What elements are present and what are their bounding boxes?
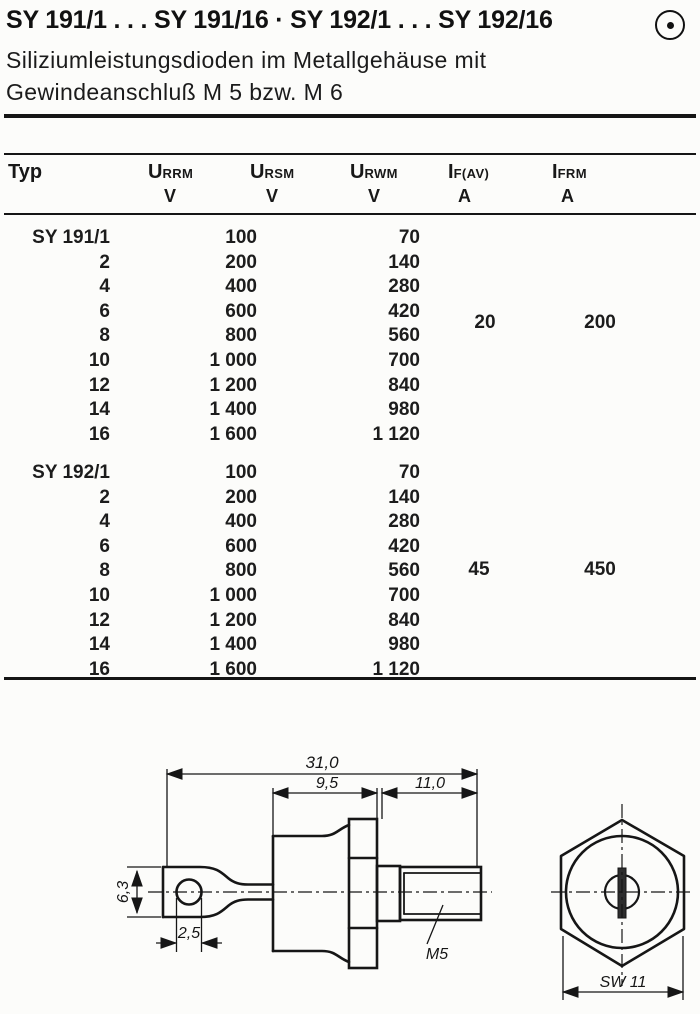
table-row: 14 1 400 980 — [0, 633, 420, 658]
table-row: 16 1 600 1 120 — [0, 658, 420, 683]
dim-hole-diameter: 2,5 — [177, 925, 200, 942]
urrm-ursm-cell: 1 600 — [110, 423, 257, 448]
table-row: 10 1 000 700 — [0, 584, 420, 609]
dim-body-length: 9,5 — [316, 775, 338, 792]
table-row: 14 1 400 980 — [0, 398, 420, 423]
hex-flange — [349, 819, 377, 968]
urrm-ursm-cell: 400 — [110, 510, 257, 535]
unit-label: V — [266, 185, 295, 207]
urrm-ursm-cell: 400 — [110, 275, 257, 300]
urwm-cell: 1 120 — [257, 658, 420, 683]
divider-table-top — [4, 153, 696, 155]
subtitle-line-2: Gewindeanschluß M 5 bzw. M 6 — [6, 76, 646, 108]
urwm-cell: 70 — [257, 226, 420, 251]
urwm-cell: 70 — [257, 461, 420, 486]
urwm-cell: 280 — [257, 275, 420, 300]
type-cell: 14 — [0, 398, 110, 423]
column-header-typ: Typ — [8, 161, 42, 183]
sy191-ifrm-value: 200 — [570, 312, 630, 334]
urrm-ursm-cell: 100 — [110, 461, 257, 486]
sy191-ifav-value: 20 — [455, 312, 515, 334]
urrm-ursm-cell: 800 — [110, 559, 257, 584]
urwm-cell: 700 — [257, 349, 420, 374]
column-header-ifav: IF(AV) A — [448, 161, 489, 207]
type-cell: 16 — [0, 423, 110, 448]
page-title: SY 191/1 . . . SY 191/16 · SY 192/1 . . … — [6, 6, 636, 35]
urrm-ursm-cell: 1 400 — [110, 398, 257, 423]
datasheet-page: SY 191/1 . . . SY 191/16 · SY 192/1 . . … — [0, 0, 700, 1014]
urrm-ursm-cell: 200 — [110, 486, 257, 511]
table-row: 16 1 600 1 120 — [0, 423, 420, 448]
urwm-cell: 560 — [257, 559, 420, 584]
urrm-ursm-cell: 1 200 — [110, 374, 257, 399]
type-cell: 6 — [0, 535, 110, 560]
type-cell: 14 — [0, 633, 110, 658]
sy192-ifav-value: 45 — [449, 559, 509, 581]
urwm-cell: 420 — [257, 535, 420, 560]
urwm-cell: 280 — [257, 510, 420, 535]
table-row: 4 400 280 — [0, 510, 420, 535]
urrm-ursm-cell: 600 — [110, 535, 257, 560]
table-row: 2 200 140 — [0, 486, 420, 511]
type-cell: 4 — [0, 510, 110, 535]
table-group-sy191: SY 191/1 100 70 2 200 140 4 400 280 6 60… — [0, 226, 420, 447]
table-row: 6 600 420 — [0, 535, 420, 560]
circled-dot-icon — [655, 10, 685, 40]
sy192-ifrm-value: 450 — [570, 559, 630, 581]
type-cell: 2 — [0, 251, 110, 276]
urwm-cell: 840 — [257, 609, 420, 634]
urrm-ursm-cell: 1 200 — [110, 609, 257, 634]
divider-thick — [4, 114, 696, 118]
urwm-cell: 840 — [257, 374, 420, 399]
urrm-ursm-cell: 100 — [110, 226, 257, 251]
urrm-ursm-cell: 1 400 — [110, 633, 257, 658]
type-cell: 2 — [0, 486, 110, 511]
type-cell: 6 — [0, 300, 110, 325]
type-cell: 4 — [0, 275, 110, 300]
subtitle-line-1: Siliziumleistungsdioden im Metallgehäuse… — [6, 44, 646, 76]
urwm-cell: 420 — [257, 300, 420, 325]
urrm-ursm-cell: 1 000 — [110, 584, 257, 609]
urrm-ursm-cell: 800 — [110, 324, 257, 349]
type-cell: 12 — [0, 374, 110, 399]
urrm-ursm-cell: 200 — [110, 251, 257, 276]
table-row: 12 1 200 840 — [0, 609, 420, 634]
type-cell: SY 192/1 — [0, 461, 110, 486]
unit-label: V — [368, 185, 398, 207]
type-cell: 8 — [0, 559, 110, 584]
column-header-urwm: URWM V — [350, 161, 398, 207]
table-row: 2 200 140 — [0, 251, 420, 276]
urrm-ursm-cell: 1 000 — [110, 349, 257, 374]
type-cell: 16 — [0, 658, 110, 683]
type-cell: 10 — [0, 349, 110, 374]
urwm-cell: 560 — [257, 324, 420, 349]
urrm-ursm-cell: 1 600 — [110, 658, 257, 683]
urwm-cell: 140 — [257, 251, 420, 276]
dim-lug-width: 6,3 — [115, 881, 132, 903]
table-row: 8 800 560 — [0, 559, 420, 584]
urwm-cell: 700 — [257, 584, 420, 609]
page-subtitle: Siliziumleistungsdioden im Metallgehäuse… — [6, 44, 646, 108]
divider-header-bottom — [4, 213, 696, 215]
table-row: SY 192/1 100 70 — [0, 461, 420, 486]
unit-label: A — [458, 185, 489, 207]
urwm-cell: 1 120 — [257, 423, 420, 448]
column-header-urrm: URRM V — [148, 161, 193, 207]
urrm-ursm-cell: 600 — [110, 300, 257, 325]
table-row: 8 800 560 — [0, 324, 420, 349]
dim-overall-length: 31,0 — [305, 753, 339, 772]
unit-label: A — [561, 185, 587, 207]
thread-size-label: M5 — [426, 946, 448, 963]
urwm-cell: 980 — [257, 398, 420, 423]
table-row: 10 1 000 700 — [0, 349, 420, 374]
technical-drawing: 31,0 9,5 11,0 6,3 2,5 M5 SW 11 — [0, 740, 700, 1014]
column-header-ursm: URSM V — [250, 161, 295, 207]
type-cell: 8 — [0, 324, 110, 349]
type-cell: 10 — [0, 584, 110, 609]
dim-wrench-size: SW 11 — [600, 974, 647, 991]
table-row: 4 400 280 — [0, 275, 420, 300]
table-row: 12 1 200 840 — [0, 374, 420, 399]
type-cell: 12 — [0, 609, 110, 634]
column-header-ifrm: IFRM A — [552, 161, 587, 207]
type-cell: SY 191/1 — [0, 226, 110, 251]
table-group-sy192: SY 192/1 100 70 2 200 140 4 400 280 6 60… — [0, 461, 420, 682]
dim-thread-length: 11,0 — [415, 775, 445, 792]
urwm-cell: 980 — [257, 633, 420, 658]
table-row: 6 600 420 — [0, 300, 420, 325]
urwm-cell: 140 — [257, 486, 420, 511]
table-row: SY 191/1 100 70 — [0, 226, 420, 251]
unit-label: V — [164, 185, 193, 207]
